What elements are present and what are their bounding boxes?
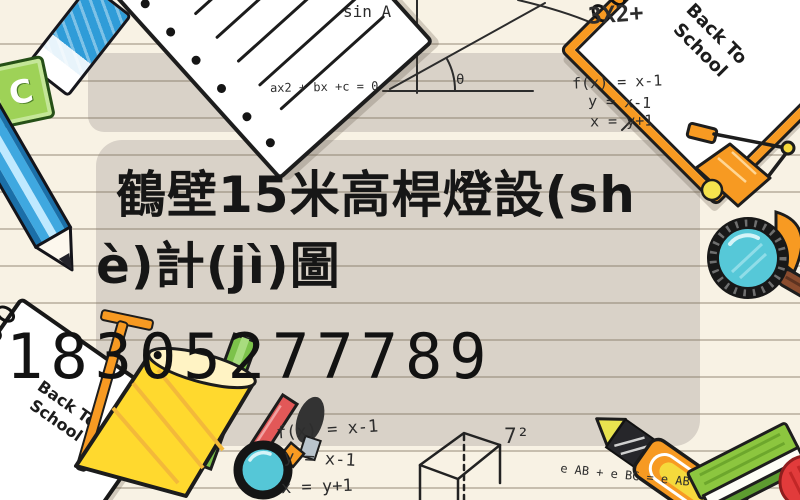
diagram-theta-label: θ [456,72,464,88]
formula-fx-top: f(x) = x-1 [572,71,663,92]
sin-a-text: sin A [343,2,391,21]
page-title: 鶴壁15米高桿燈設(sh è)計(jì)圖 [96,160,696,302]
back-to-school-label: Back To School [639,0,777,112]
title-line1: 鶴壁15米高桿燈設(sh [96,160,696,231]
banner-image: x θ sin A ax2 + bx +c = 0 3X2+ f(x) = x-… [0,0,800,500]
formula-y-bottom: y = x-1 [284,447,357,471]
magnifier-doodle [698,214,800,306]
cube-doodle [410,425,505,500]
seven-squared-text: 7² [504,424,529,448]
apple-doodle [772,452,800,500]
power-text: 3X2+ [587,0,644,30]
phone-number: 18305277789 [6,320,494,393]
formula-x-top: x = y+1 [590,111,654,130]
quadratic-text: ax2 + bx +c = 0 [270,79,379,95]
title-line2: è)計(jì)圖 [96,237,341,295]
formula-x-bottom: x = y+1 [281,476,353,498]
pencil-doodle [0,120,95,305]
formula-y-top: y = x-1 [588,92,652,112]
letter-c-text: C [6,71,37,113]
